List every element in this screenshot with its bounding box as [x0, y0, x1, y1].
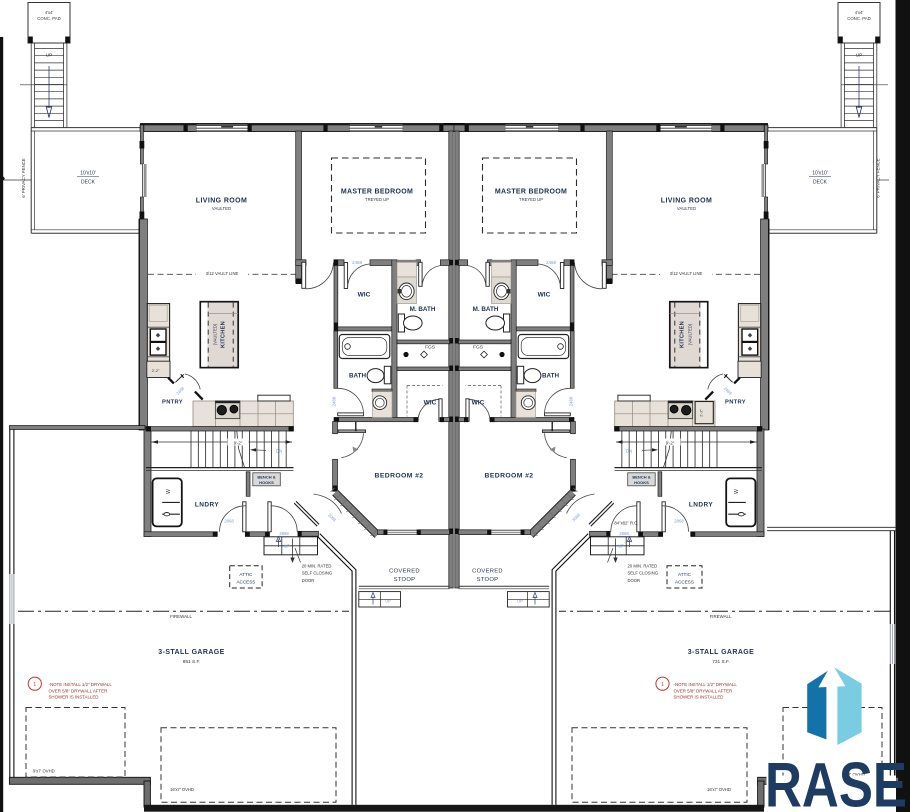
- svg-text:SELF CLOSING: SELF CLOSING: [302, 571, 332, 576]
- svg-text:2468: 2468: [352, 260, 363, 265]
- svg-text:SELF CLOSING: SELF CLOSING: [628, 571, 658, 576]
- svg-text:3-STALL GARAGE: 3-STALL GARAGE: [158, 649, 224, 656]
- svg-text:-NOTE INSTALL 1/2" DRYWALL: -NOTE INSTALL 1/2" DRYWALL: [674, 682, 738, 687]
- svg-text:851 S.F.: 851 S.F.: [183, 659, 201, 665]
- svg-text:ATTIC: ATTIC: [678, 572, 692, 577]
- svg-text:DECK: DECK: [81, 180, 96, 186]
- svg-text:LNDRY: LNDRY: [689, 502, 713, 509]
- svg-text:KITCHEN: KITCHEN: [221, 321, 227, 348]
- svg-text:DOOR: DOOR: [628, 578, 641, 583]
- svg-text:UP: UP: [517, 599, 523, 604]
- svg-text:UP: UP: [46, 53, 52, 58]
- svg-text:3/12 VAULT LINE: 3/12 VAULT LINE: [670, 271, 703, 276]
- svg-text:2868: 2868: [619, 531, 629, 536]
- svg-text:1: 1: [661, 682, 664, 688]
- svg-text:20 MIN. RATED: 20 MIN. RATED: [302, 564, 332, 569]
- svg-text:WIC: WIC: [424, 400, 437, 407]
- svg-text:ACCESS: ACCESS: [236, 579, 255, 584]
- svg-text:PNTRY: PNTRY: [725, 400, 746, 406]
- svg-text:M. BATH: M. BATH: [410, 306, 436, 313]
- svg-text:BENCH &: BENCH &: [257, 475, 275, 480]
- svg-text:SHOWER IS INSTALLED: SHOWER IS INSTALLED: [674, 695, 724, 700]
- svg-text:(VAULTED): (VAULTED): [688, 323, 693, 345]
- svg-text:MASTER BEDROOM: MASTER BEDROOM: [341, 189, 413, 196]
- svg-text:RASE: RASE: [765, 751, 907, 812]
- svg-text:DN: DN: [626, 448, 632, 453]
- svg-text:COVERED: COVERED: [389, 569, 420, 575]
- svg-text:9'-2": 9'-2": [234, 440, 243, 445]
- svg-text:WIC: WIC: [358, 292, 371, 299]
- svg-text:W: W: [166, 489, 172, 494]
- svg-text:84"x82" R.O.: 84"x82" R.O.: [614, 521, 638, 526]
- svg-text:2'-2": 2'-2": [152, 368, 160, 373]
- svg-text:CONC. PAD: CONC. PAD: [847, 16, 871, 21]
- svg-text:2468: 2468: [546, 260, 557, 265]
- svg-text:1: 1: [33, 682, 36, 688]
- svg-text:2868: 2868: [674, 519, 684, 524]
- svg-text:M. BATH: M. BATH: [473, 306, 499, 313]
- svg-text:STOOP: STOOP: [394, 577, 416, 583]
- svg-text:10'x10': 10'x10': [812, 171, 828, 177]
- svg-text:UP: UP: [385, 599, 391, 604]
- svg-text:731 S.F.: 731 S.F.: [712, 659, 730, 665]
- svg-text:LIVING ROOM: LIVING ROOM: [196, 198, 247, 205]
- svg-text:10'x10': 10'x10': [80, 171, 96, 177]
- svg-text:VAULTED: VAULTED: [212, 206, 231, 211]
- svg-text:3-STALL GARAGE: 3-STALL GARAGE: [688, 649, 754, 656]
- svg-text:2468: 2468: [569, 396, 574, 406]
- svg-text:DOOR: DOOR: [302, 578, 315, 583]
- svg-text:BATH: BATH: [542, 373, 559, 380]
- svg-text:(VAULTED): (VAULTED): [213, 323, 218, 345]
- svg-text:DECK: DECK: [813, 180, 828, 186]
- svg-text:2868: 2868: [279, 531, 289, 536]
- svg-text:2'-2": 2'-2": [698, 409, 703, 417]
- svg-text:ATTIC: ATTIC: [239, 572, 253, 577]
- svg-text:9'x7' OVHD: 9'x7' OVHD: [33, 769, 55, 774]
- svg-text:6' PRIVACY FENCE: 6' PRIVACY FENCE: [21, 158, 26, 198]
- svg-text:CONC. PAD: CONC. PAD: [37, 16, 61, 21]
- svg-text:VAULTED: VAULTED: [677, 206, 696, 211]
- svg-text:FGS: FGS: [473, 345, 483, 351]
- svg-text:2468: 2468: [331, 396, 336, 406]
- svg-text:UP: UP: [856, 53, 862, 58]
- svg-text:FGS: FGS: [425, 345, 435, 351]
- svg-text:W: W: [734, 489, 740, 494]
- svg-text:PNTRY: PNTRY: [162, 400, 183, 406]
- svg-text:COVERED: COVERED: [472, 569, 503, 575]
- svg-text:TREYED UP: TREYED UP: [365, 197, 389, 202]
- svg-text:DN: DN: [276, 448, 282, 453]
- svg-text:16'x7' OVHD: 16'x7' OVHD: [707, 787, 731, 792]
- svg-text:ACCESS: ACCESS: [675, 579, 694, 584]
- svg-text:UP: UP: [618, 543, 624, 548]
- svg-text:TREYED UP: TREYED UP: [519, 197, 543, 202]
- svg-text:20 MIN. RATED: 20 MIN. RATED: [628, 564, 658, 569]
- svg-text:SHOWER IS INSTALLED: SHOWER IS INSTALLED: [49, 695, 99, 700]
- svg-text:LNDRY: LNDRY: [195, 502, 219, 509]
- svg-text:3/12 VAULT LINE: 3/12 VAULT LINE: [206, 271, 239, 276]
- svg-text:MASTER BEDROOM: MASTER BEDROOM: [495, 189, 567, 196]
- svg-text:4'x4': 4'x4': [45, 10, 54, 15]
- svg-text:UP: UP: [284, 543, 290, 548]
- svg-text:2868: 2868: [224, 519, 234, 524]
- svg-text:OVER 5/8" DRYWALL AFTER: OVER 5/8" DRYWALL AFTER: [49, 688, 108, 693]
- svg-text:-NOTE INSTALL 1/2" DRYWALL: -NOTE INSTALL 1/2" DRYWALL: [49, 682, 113, 687]
- svg-text:HOOKS: HOOKS: [634, 480, 649, 485]
- svg-text:KITCHEN: KITCHEN: [680, 321, 686, 348]
- svg-text:BENCH &: BENCH &: [632, 475, 650, 480]
- svg-text:FIREWALL: FIREWALL: [710, 614, 732, 619]
- svg-text:9'-2": 9'-2": [666, 440, 675, 445]
- svg-text:STOOP: STOOP: [477, 577, 499, 583]
- svg-text:BEDROOM #2: BEDROOM #2: [485, 473, 534, 480]
- svg-text:4'x4': 4'x4': [855, 10, 864, 15]
- svg-text:BATH: BATH: [349, 373, 366, 380]
- svg-text:LIVING ROOM: LIVING ROOM: [661, 198, 712, 205]
- svg-text:BEDROOM #2: BEDROOM #2: [375, 473, 424, 480]
- svg-text:WIC: WIC: [538, 292, 551, 299]
- svg-text:OVER 5/8" DRYWALL AFTER: OVER 5/8" DRYWALL AFTER: [674, 688, 733, 693]
- svg-text:16'x7' OVHD: 16'x7' OVHD: [170, 787, 194, 792]
- svg-text:HOOKS: HOOKS: [259, 480, 274, 485]
- svg-text:FIREWALL: FIREWALL: [170, 614, 192, 619]
